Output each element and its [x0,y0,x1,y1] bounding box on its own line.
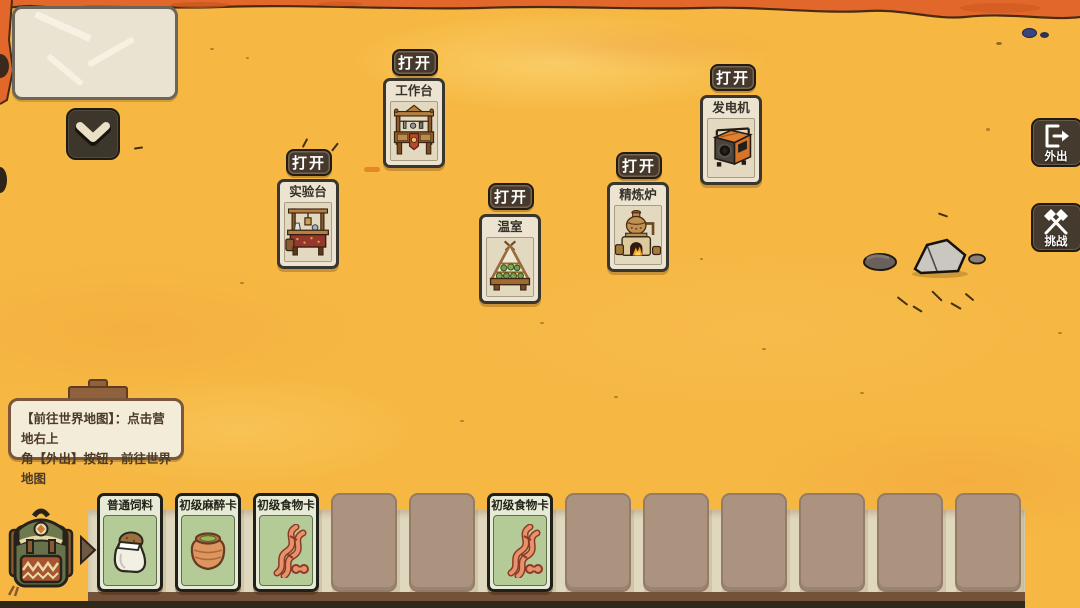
pebble [614,396,618,398]
crossed-axes-icon [1041,208,1071,236]
hand-slot-empty [565,493,631,592]
workbench-icon [391,101,437,161]
building-card-lab-bench[interactable]: 实验台 [277,179,339,269]
pebble [996,42,1002,45]
hand-card-title: 普通饲料 [100,496,160,514]
rocks [855,235,990,283]
pebble [240,282,244,284]
challenge-button[interactable]: 挑战 [1031,203,1080,252]
grass-mark [331,142,339,151]
grass-mark [897,296,908,306]
paper-texture [46,54,84,87]
paper-texture [34,11,92,42]
hand-card-anesthesia[interactable]: 初级麻醉卡 [175,493,241,592]
open-button-generator[interactable]: 打开 [710,64,756,91]
tooltip-line-1: 【前往世界地图】：点击营地右上 [21,409,171,449]
clay-pot-icon [185,524,231,578]
hand-slot-empty [643,493,709,592]
lab-bench-icon [285,202,331,262]
building-title: 工作台 [386,81,442,100]
open-button-refining-furnace[interactable]: 打开 [616,152,662,179]
blue-pebble [1022,28,1037,38]
open-button-workbench[interactable]: 打开 [392,49,438,76]
sand-streak [364,167,380,172]
dna-icon [497,524,543,578]
pebble [210,48,214,50]
hand-slot-empty [799,493,865,592]
grass-mark [938,212,948,217]
hand-slot-empty [331,493,397,592]
greenhouse-icon [487,237,533,297]
grass-mark [950,302,961,310]
hand-slot-empty [877,493,943,592]
building-art-frame [486,237,534,297]
building-title: 实验台 [280,182,336,201]
go-out-label: 外出 [1033,148,1079,164]
pebble [986,128,990,131]
building-card-generator[interactable]: 发电机 [700,95,762,185]
feed-sack-icon [107,524,153,578]
bottom-shadow-strip [0,601,1025,608]
pebble [700,258,703,260]
info-panel [12,6,178,100]
pebble [1058,332,1062,334]
pebble [246,57,249,59]
building-title: 温室 [482,217,538,236]
tutorial-tooltip: 【前往世界地图】：点击营地右上 角【外出】按钮，前往世界地图 [8,398,184,460]
hand-card-art [493,515,547,586]
grass-mark [912,305,922,313]
open-button-lab-bench[interactable]: 打开 [286,149,332,176]
blue-pebble [1040,32,1049,38]
hand-card-title: 初级食物卡 [256,496,316,514]
hand-card-art [259,515,313,586]
furnace-icon [615,205,661,265]
open-button-greenhouse[interactable]: 打开 [488,183,534,210]
exit-door-icon [1041,123,1071,151]
go-out-button[interactable]: 外出 [1031,118,1080,167]
generator-icon [708,118,754,178]
grass-mark [965,293,975,302]
hand-card-art [103,515,157,586]
hand-card-food[interactable]: 初级食物卡 [253,493,319,592]
grass-mark [134,146,143,149]
hand-card-food[interactable]: 初级食物卡 [487,493,553,592]
building-card-workbench[interactable]: 工作台 [383,78,445,168]
backpack-icon[interactable] [6,498,76,598]
pebble [540,322,544,324]
building-art-frame [390,101,438,161]
pebble [460,420,464,422]
paper-texture [87,36,135,67]
hand-slot-empty [955,493,1021,592]
building-card-refining-furnace[interactable]: 精炼炉 [607,182,669,272]
building-title: 发电机 [703,98,759,117]
hand-card-art [181,515,235,586]
chevron-down-icon [75,122,111,146]
game-viewport: 打开 实验台 打开 工作台 [0,0,1080,608]
dna-icon [263,524,309,578]
hand-card-feed[interactable]: 普通饲料 [97,493,163,592]
challenge-label: 挑战 [1033,233,1079,249]
grass-mark [302,138,308,148]
hand-card-title: 初级麻醉卡 [178,496,238,514]
collapse-panel-button[interactable] [66,108,120,160]
hand-slot-empty [721,493,787,592]
building-art-frame [707,118,755,178]
building-title: 精炼炉 [610,185,666,204]
pebble [762,348,766,350]
hand-slot-empty [409,493,475,592]
grass-mark [931,290,942,301]
hand-card-title: 初级食物卡 [490,496,550,514]
building-art-frame [284,202,332,262]
tooltip-line-2: 角【外出】按钮，前往世界地图 [21,449,171,489]
building-card-greenhouse[interactable]: 温室 [479,214,541,304]
arrow-right-icon [79,535,97,565]
building-art-frame [614,205,662,265]
pebble [860,392,864,394]
